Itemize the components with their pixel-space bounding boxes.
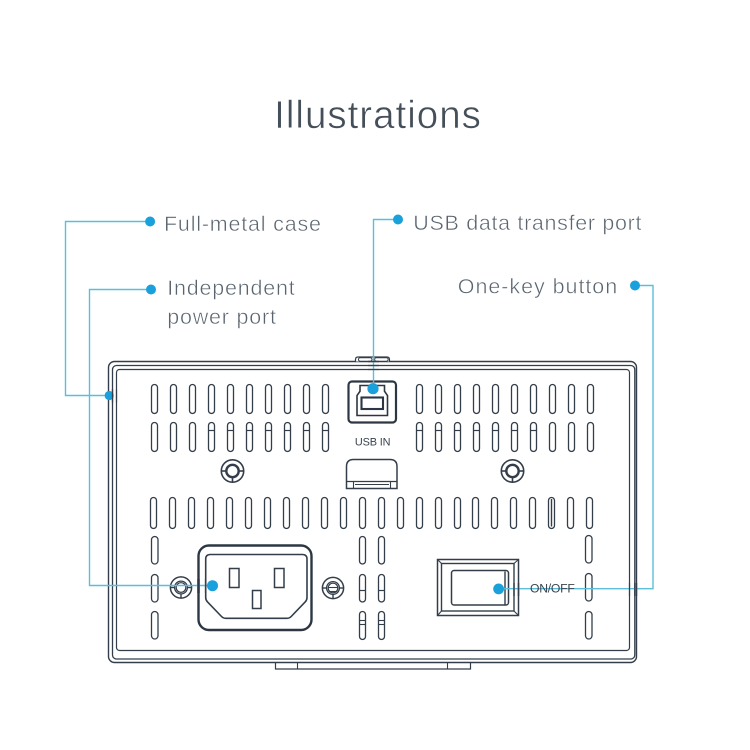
- svg-text:USB IN: USB IN: [355, 436, 390, 448]
- svg-text:Full-metal case: Full-metal case: [164, 212, 322, 236]
- svg-text:One-key button: One-key button: [458, 274, 618, 298]
- svg-text:Independent: Independent: [167, 276, 295, 300]
- svg-text:power port: power port: [167, 305, 277, 329]
- svg-text:USB data transfer port: USB data transfer port: [413, 211, 642, 235]
- svg-text:ON/OFF: ON/OFF: [530, 581, 575, 595]
